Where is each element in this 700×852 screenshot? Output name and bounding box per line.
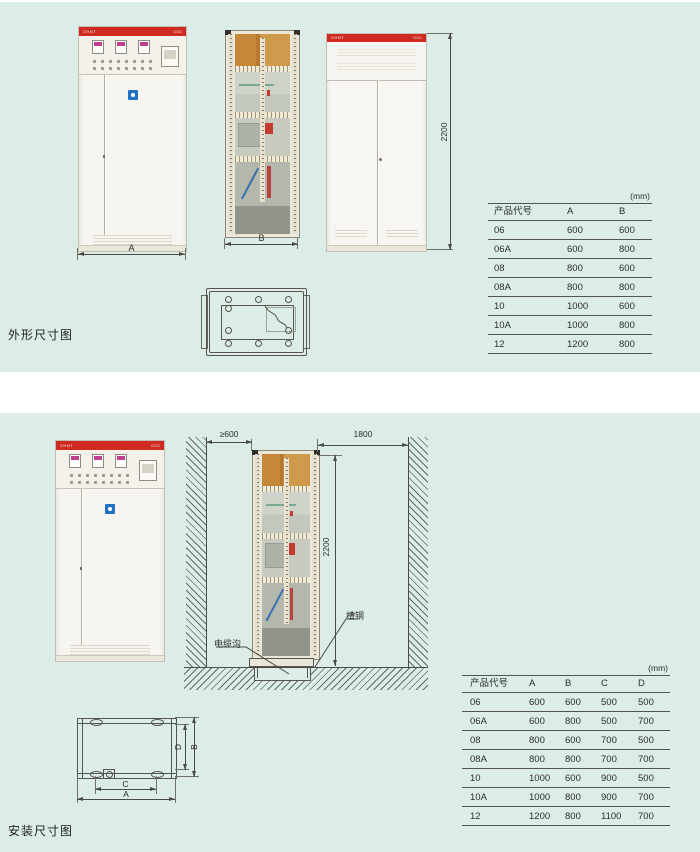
outline-section: CHNT GGD bbox=[0, 2, 700, 372]
cell: 08A bbox=[470, 754, 487, 765]
cell: 700 bbox=[601, 735, 617, 746]
mounting-slot bbox=[90, 771, 103, 778]
dim-arrow bbox=[402, 443, 408, 447]
meter-row bbox=[92, 40, 150, 54]
brand-badge-icon bbox=[105, 504, 115, 514]
cabinet-base bbox=[56, 655, 164, 661]
cabinet-front-view: CHNT GGD bbox=[55, 440, 165, 662]
cabinet-internal-side-view bbox=[225, 30, 300, 238]
cell: 700 bbox=[638, 792, 654, 803]
cell: 900 bbox=[601, 792, 617, 803]
cell: 800 bbox=[567, 263, 583, 274]
leader-lines bbox=[180, 603, 430, 693]
vent-grille bbox=[386, 230, 418, 239]
dimension-b-label: B bbox=[225, 233, 298, 243]
cell: 10 bbox=[494, 301, 505, 312]
cell: 1200 bbox=[529, 811, 550, 822]
cell: 10A bbox=[494, 320, 511, 331]
cabinet-rear-view: CHNT GGD bbox=[326, 33, 427, 252]
cell: 600 bbox=[619, 263, 635, 274]
cell: 800 bbox=[567, 282, 583, 293]
vent-grille bbox=[335, 230, 367, 239]
column-header: A bbox=[529, 678, 535, 689]
dimension-line bbox=[318, 445, 408, 446]
dimension-line bbox=[450, 33, 451, 250]
cell: 800 bbox=[619, 339, 635, 350]
plan-inner-line bbox=[82, 719, 83, 778]
cell: 800 bbox=[565, 792, 581, 803]
clearance-left-label: ≥600 bbox=[206, 429, 252, 439]
mounting-rail-left bbox=[228, 34, 233, 234]
cell: 08 bbox=[470, 735, 481, 746]
cell: 10A bbox=[470, 792, 487, 803]
cell: 500 bbox=[638, 735, 654, 746]
cell: 800 bbox=[565, 754, 581, 765]
panel-meter bbox=[161, 46, 179, 67]
brand-badge-icon bbox=[128, 90, 138, 100]
cell: 1000 bbox=[567, 320, 588, 331]
column-header: B bbox=[565, 678, 571, 689]
cell: 700 bbox=[638, 754, 654, 765]
mounting-slot bbox=[151, 771, 164, 778]
install-section: CHNT GGD bbox=[0, 413, 700, 852]
cabinet-front-view: CHNT GGD bbox=[78, 26, 187, 252]
indicator-row bbox=[93, 67, 157, 70]
section-caption: 外形尺寸图 bbox=[8, 326, 73, 343]
cell: 800 bbox=[565, 811, 581, 822]
cell: 1000 bbox=[529, 792, 550, 803]
cell: 06A bbox=[470, 716, 487, 727]
column-header: 产品代号 bbox=[494, 203, 532, 217]
cell: 800 bbox=[619, 282, 635, 293]
dim-arrow bbox=[333, 455, 337, 461]
meter-display bbox=[69, 454, 81, 468]
cell: 06A bbox=[494, 244, 511, 255]
table-row: 10A 1000 800 bbox=[488, 316, 652, 335]
dimension-height-label: 2200 bbox=[320, 533, 332, 561]
cell: 800 bbox=[565, 716, 581, 727]
cell: 600 bbox=[565, 735, 581, 746]
dim-arrow bbox=[183, 764, 187, 770]
cell: 08A bbox=[494, 282, 511, 293]
dimension-line bbox=[225, 244, 298, 245]
cell: 12 bbox=[470, 811, 481, 822]
dim-arrow bbox=[246, 440, 252, 444]
cell: 500 bbox=[601, 716, 617, 727]
cell: 600 bbox=[529, 697, 545, 708]
indicator-row bbox=[70, 474, 134, 477]
rear-upper-panel bbox=[327, 42, 426, 81]
extension-line bbox=[175, 777, 176, 803]
cell: 1000 bbox=[567, 301, 588, 312]
table-row: 06A 600 800 500 700 bbox=[462, 712, 670, 731]
cell: 600 bbox=[567, 244, 583, 255]
dim-arrow bbox=[183, 724, 187, 730]
cell: 600 bbox=[529, 716, 545, 727]
cell: 500 bbox=[638, 773, 654, 784]
cell: 500 bbox=[601, 697, 617, 708]
cell: 600 bbox=[619, 225, 635, 236]
table-header-row: 产品代号 A B bbox=[488, 203, 652, 221]
table-row: 08 800 600 700 500 bbox=[462, 731, 670, 750]
cabinet-top-view bbox=[201, 288, 310, 354]
dimension-line bbox=[77, 799, 175, 800]
cell: 700 bbox=[601, 754, 617, 765]
cabinet-door bbox=[56, 488, 164, 645]
table-row: 12 1200 800 1100 700 bbox=[462, 807, 670, 826]
cell: 1000 bbox=[529, 773, 550, 784]
table-row: 06 600 600 500 500 bbox=[462, 693, 670, 712]
plan-dim-d-label: D bbox=[172, 740, 184, 754]
door-lock bbox=[103, 155, 105, 158]
door-lock bbox=[379, 158, 382, 161]
model-text: GGD bbox=[151, 444, 160, 448]
dim-arrow bbox=[169, 797, 175, 801]
cell: 600 bbox=[567, 225, 583, 236]
cable-entry bbox=[103, 769, 115, 779]
indicator-row bbox=[93, 60, 157, 63]
cell: 06 bbox=[470, 697, 481, 708]
cell: 12 bbox=[494, 339, 505, 350]
table-row: 08 800 600 bbox=[488, 259, 652, 278]
install-table: (mm) 产品代号 A B C D 06 600 600 500 500 06A… bbox=[462, 662, 670, 826]
table-row: 06 600 600 bbox=[488, 221, 652, 240]
table-row: 10 1000 600 900 500 bbox=[462, 769, 670, 788]
table-unit-label: (mm) bbox=[462, 662, 670, 675]
mounting-rail-right bbox=[292, 34, 297, 234]
door-seam bbox=[377, 80, 378, 246]
cell: 700 bbox=[638, 811, 654, 822]
table-unit-label: (mm) bbox=[488, 190, 652, 203]
column-header: 产品代号 bbox=[470, 675, 508, 689]
instrument-panel bbox=[79, 36, 186, 75]
mounting-floor-plan: C A D B bbox=[65, 705, 205, 815]
extension-line bbox=[318, 455, 342, 456]
cabinet-door bbox=[79, 74, 186, 235]
panel-meter bbox=[139, 460, 157, 481]
dim-arrow bbox=[77, 797, 83, 801]
meter-display bbox=[115, 454, 127, 468]
brand-logo-text: CHNT bbox=[60, 444, 73, 448]
cell: 800 bbox=[619, 244, 635, 255]
cell: 600 bbox=[619, 301, 635, 312]
table-row: 12 1200 800 bbox=[488, 335, 652, 354]
cabinet-nameplate-band: CHNT GGD bbox=[56, 441, 164, 450]
cell: 10 bbox=[470, 773, 481, 784]
center-rail bbox=[260, 38, 265, 202]
meter-display bbox=[138, 40, 150, 54]
catalog-page: CHNT GGD bbox=[0, 0, 700, 852]
table-row: 10A 1000 800 900 700 bbox=[462, 788, 670, 807]
center-rail bbox=[284, 458, 289, 624]
cell: 08 bbox=[494, 263, 505, 274]
instrument-panel bbox=[56, 450, 164, 489]
extension-line bbox=[185, 248, 186, 260]
cell: 800 bbox=[529, 735, 545, 746]
mounting-slot bbox=[90, 719, 103, 726]
cell: 1200 bbox=[567, 339, 588, 350]
dim-arrow bbox=[448, 244, 452, 250]
dim-arrow bbox=[206, 440, 212, 444]
section-caption: 安装尺寸图 bbox=[8, 822, 73, 839]
internal-components bbox=[235, 34, 290, 234]
cabinet-nameplate-band: CHNT GGD bbox=[327, 34, 426, 42]
rear-doors bbox=[327, 80, 426, 246]
cell: 06 bbox=[494, 225, 505, 236]
dimension-a-label: A bbox=[78, 243, 185, 253]
door-lock bbox=[80, 567, 82, 570]
dimension-line bbox=[78, 254, 185, 255]
plan-outline bbox=[77, 718, 177, 779]
plan-dim-b-label: B bbox=[188, 740, 200, 754]
mounting-slot bbox=[151, 719, 164, 726]
outline-table: (mm) 产品代号 A B 06 600 600 06A 600 800 08 … bbox=[488, 190, 652, 354]
cell: 700 bbox=[638, 716, 654, 727]
model-text: GGD bbox=[413, 36, 422, 40]
base-section bbox=[235, 206, 290, 234]
meter-display bbox=[115, 40, 127, 54]
cell: 600 bbox=[565, 773, 581, 784]
clearance-rear-label: 1800 bbox=[318, 429, 408, 439]
cell: 500 bbox=[638, 697, 654, 708]
table-row: 10 1000 600 bbox=[488, 297, 652, 316]
table-header-row: 产品代号 A B C D bbox=[462, 675, 670, 693]
dim-arrow bbox=[192, 771, 196, 777]
vent-grille bbox=[70, 645, 150, 655]
cell: 800 bbox=[529, 754, 545, 765]
dim-arrow bbox=[192, 717, 196, 723]
cell: 600 bbox=[565, 697, 581, 708]
table-row: 08A 800 800 bbox=[488, 278, 652, 297]
cell: 1100 bbox=[601, 811, 621, 822]
table-row: 08A 800 800 700 700 bbox=[462, 750, 670, 769]
cell: 800 bbox=[619, 320, 635, 331]
meter-display bbox=[92, 454, 104, 468]
table-row: 06A 600 800 bbox=[488, 240, 652, 259]
brand-logo-text: CHNT bbox=[83, 30, 96, 34]
model-text: GGD bbox=[173, 30, 182, 34]
indicator-row bbox=[70, 481, 134, 484]
dim-arrow bbox=[318, 443, 324, 447]
dim-arrow bbox=[448, 33, 452, 39]
cell: 900 bbox=[601, 773, 617, 784]
brand-logo-text: CHNT bbox=[331, 36, 344, 40]
column-header: C bbox=[601, 678, 608, 689]
meter-row bbox=[69, 454, 127, 468]
column-header: D bbox=[638, 678, 645, 689]
cutout-line bbox=[201, 288, 310, 354]
column-header: B bbox=[619, 206, 625, 217]
column-header: A bbox=[567, 206, 573, 217]
dimension-height-label: 2200 bbox=[438, 118, 450, 146]
cabinet-nameplate-band: CHNT GGD bbox=[79, 27, 186, 36]
cabinet-base bbox=[327, 245, 426, 251]
plan-dim-a-label: A bbox=[77, 789, 175, 799]
meter-display bbox=[92, 40, 104, 54]
plan-dim-c-label: C bbox=[95, 779, 156, 789]
